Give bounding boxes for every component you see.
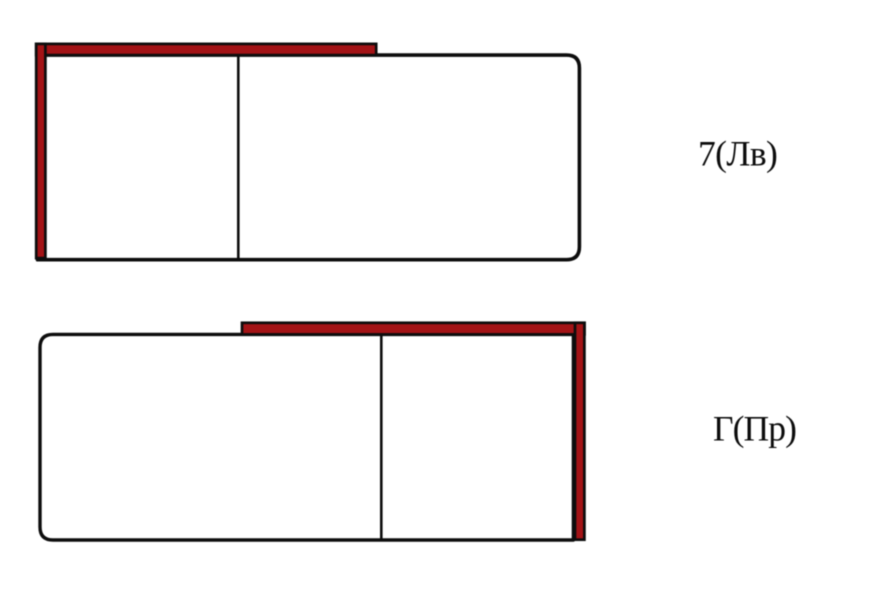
- svg-text:7(Лв): 7(Лв): [698, 134, 777, 174]
- svg-text:Г(Пр): Г(Пр): [713, 409, 796, 449]
